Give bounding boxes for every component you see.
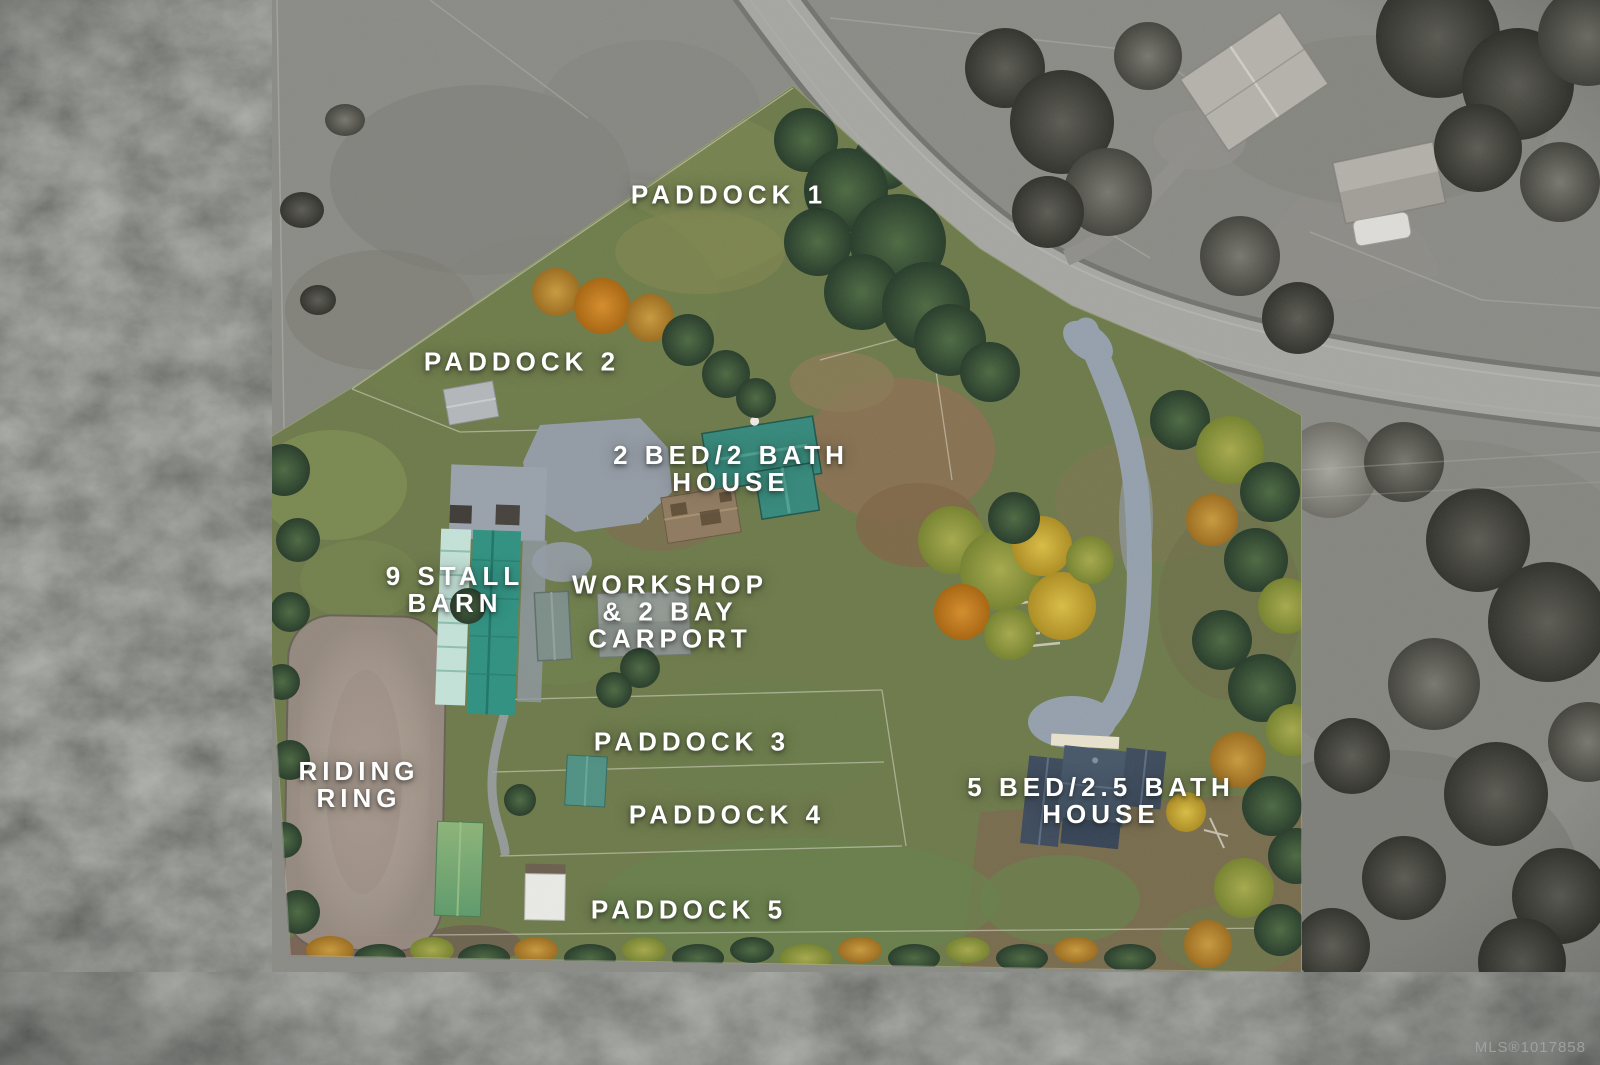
label-paddock-1: PADDOCK 1 xyxy=(631,182,827,209)
label-2bed-house: 2 BED/2 BATH HOUSE xyxy=(613,442,849,496)
label-paddock-2: PADDOCK 2 xyxy=(424,349,620,376)
label-riding-ring: RIDING RING xyxy=(299,758,420,812)
label-paddock-2-text: PADDOCK 2 xyxy=(424,349,620,376)
label-9-stall-barn: 9 STALL BARN xyxy=(386,563,525,617)
label-paddock-1-text: PADDOCK 1 xyxy=(631,182,827,209)
label-workshop-carport: WORKSHOP & 2 BAY CARPORT xyxy=(572,572,768,653)
label-5bed-house: 5 BED/2.5 BATH HOUSE xyxy=(967,774,1234,828)
vignette xyxy=(0,0,1600,1065)
aerial-scene xyxy=(0,0,1600,1065)
label-paddock-5: PADDOCK 5 xyxy=(591,897,787,924)
label-paddock-4: PADDOCK 4 xyxy=(629,802,825,829)
mls-watermark: MLS®1017858 xyxy=(1475,1039,1586,1056)
aerial-property-photo: PADDOCK 1 PADDOCK 2 2 BED/2 BATH HOUSE 9… xyxy=(0,0,1600,1065)
label-paddock-3: PADDOCK 3 xyxy=(594,729,790,756)
